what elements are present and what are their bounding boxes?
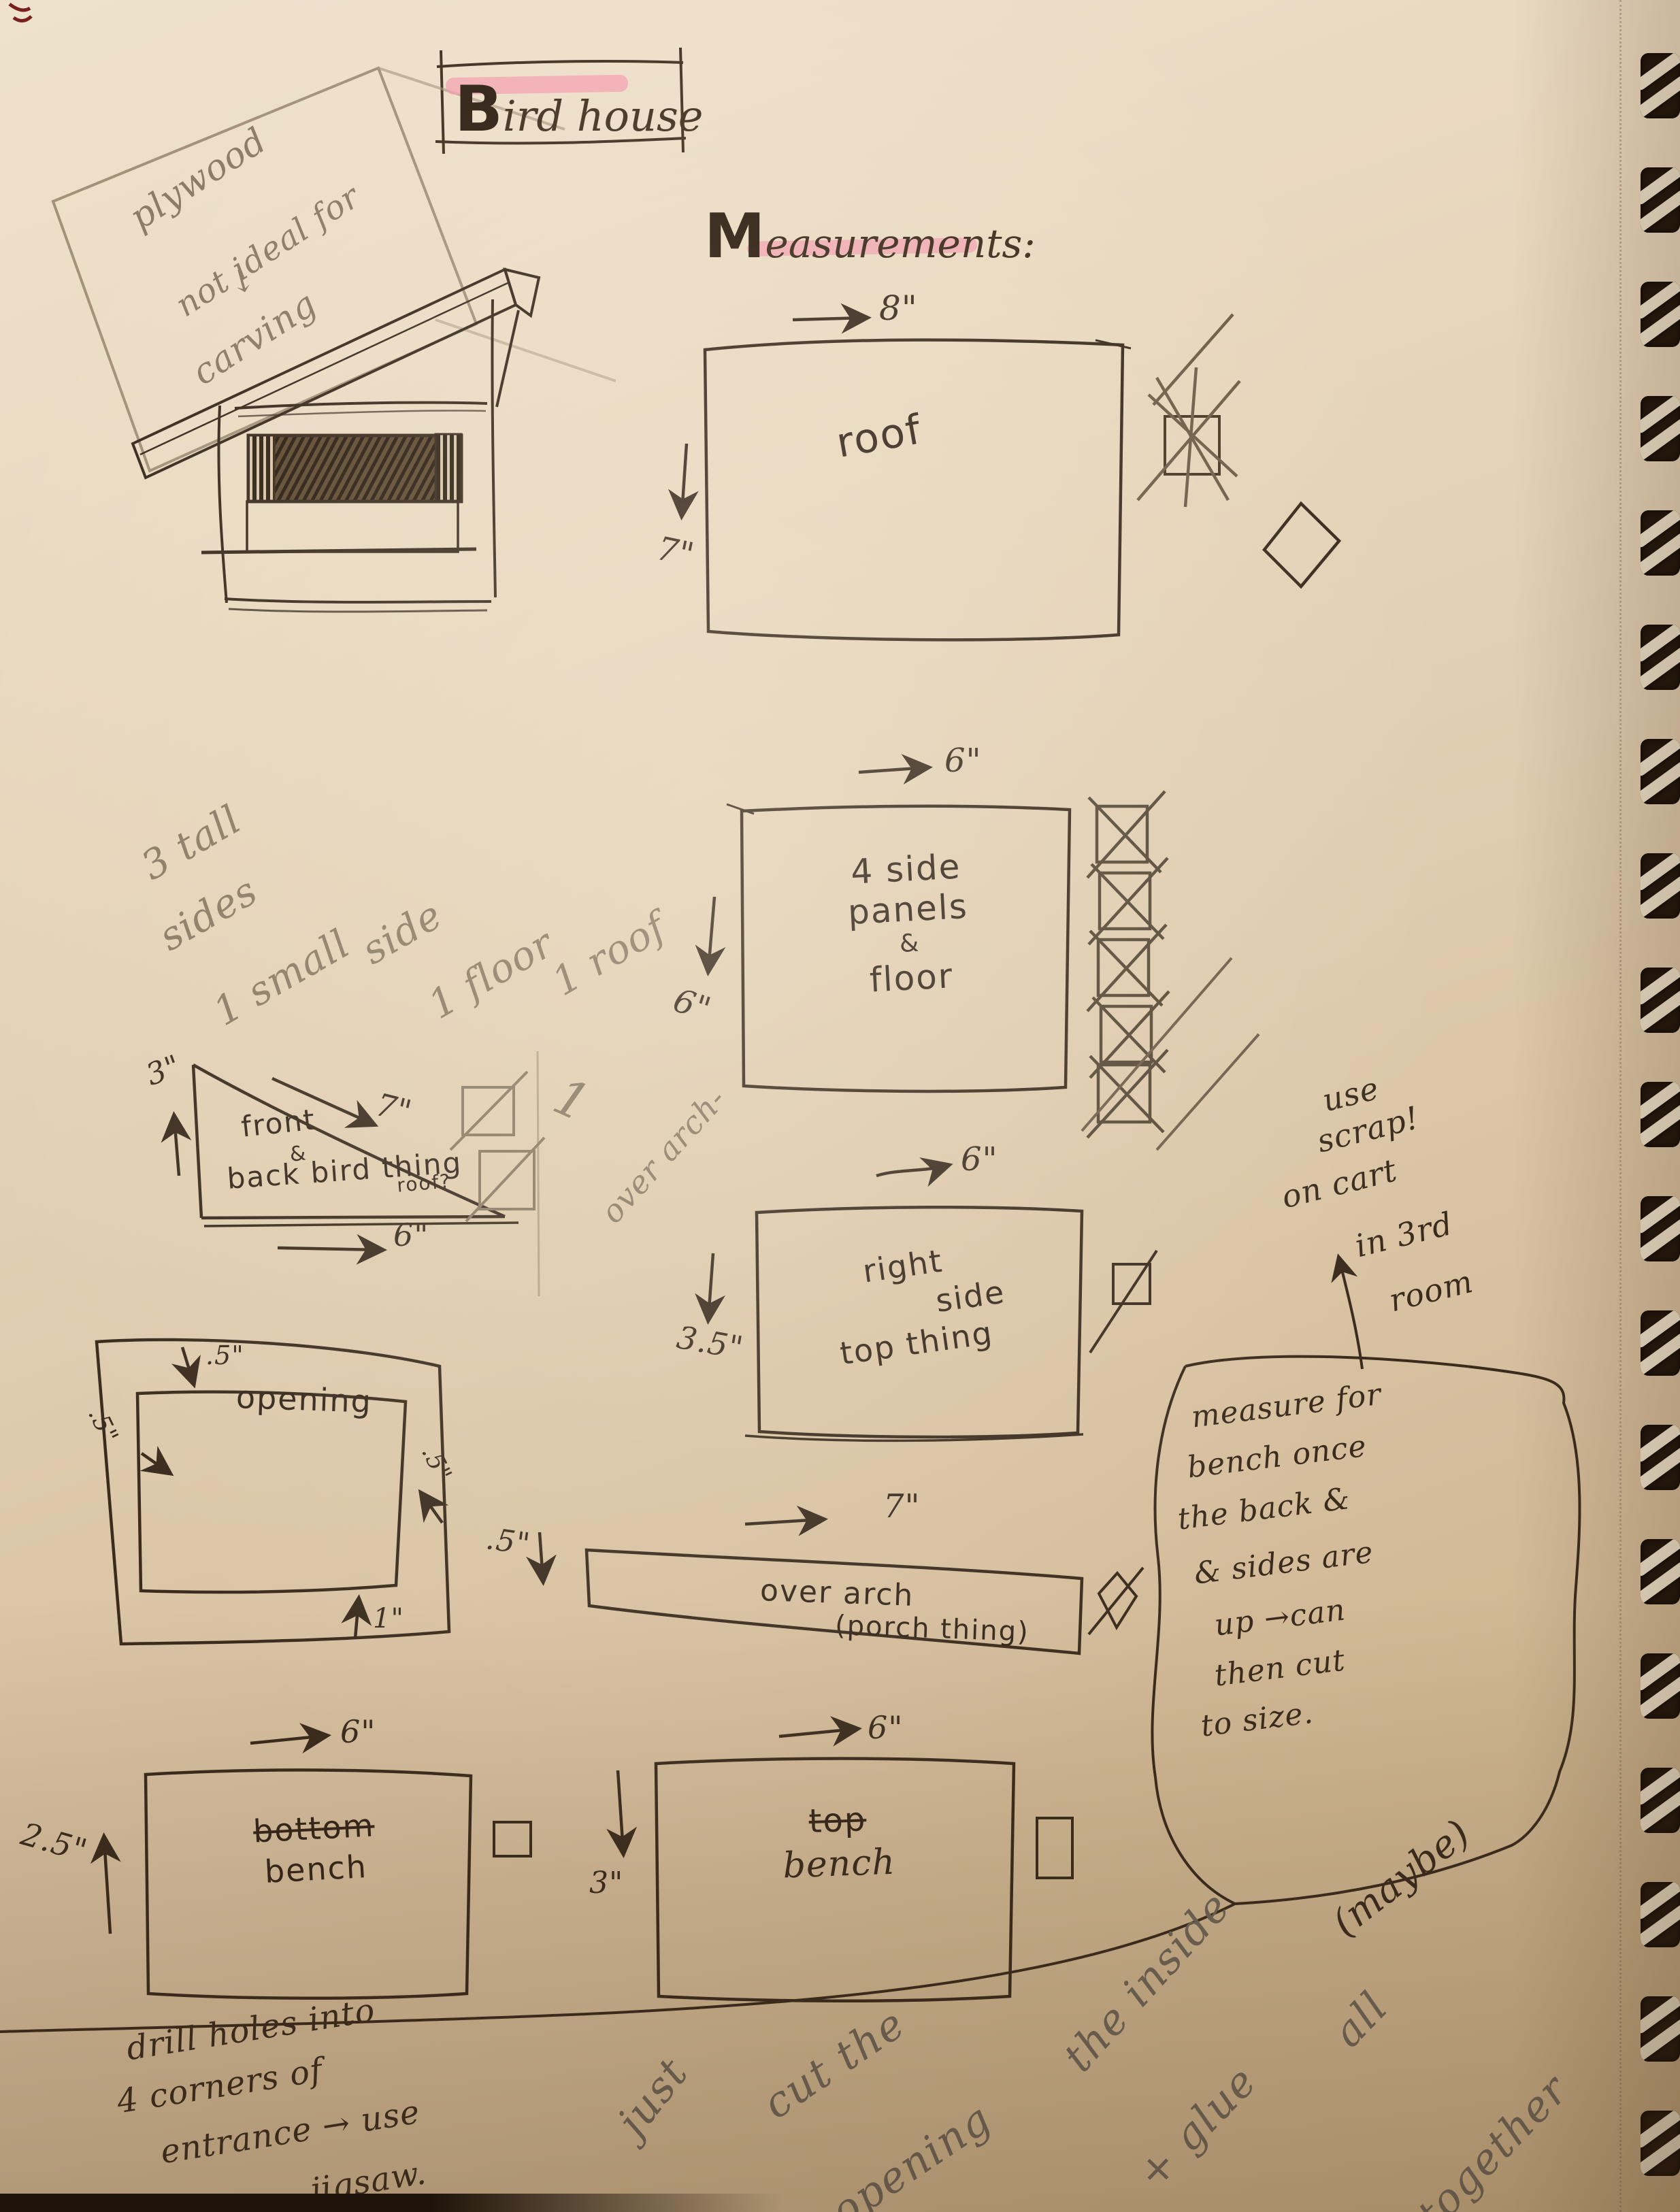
page-title: Bird house: [455, 72, 703, 146]
notebook-page: Bird house Measurements: plywood ↓ not i…: [0, 0, 1680, 2212]
side-panels-width-value: 6": [944, 742, 982, 780]
spiral-binding-hole: [1641, 510, 1680, 576]
top-bench-height-value: 3": [589, 1866, 623, 1900]
spiral-binding-hole: [1641, 1196, 1680, 1261]
spiral-binding-hole: [1641, 625, 1680, 690]
opening-label: opening: [235, 1379, 373, 1420]
spiral-binding-hole: [1641, 53, 1680, 118]
spiral-binding-hole: [1641, 1653, 1680, 1719]
spiral-binding-hole: [1641, 1082, 1680, 1147]
top-bench-label: top bench: [694, 1794, 983, 1893]
spiral-binding: [1619, 0, 1680, 2212]
spiral-binding-hole: [1641, 739, 1680, 804]
opening-bottom-value: 1": [373, 1603, 404, 1634]
spiral-binding-hole: [1641, 2111, 1680, 2176]
spiral-binding-hole: [1641, 1768, 1680, 1833]
gable-line4: roof?: [396, 1170, 452, 1197]
side-panels-label: 4 side panels & floor: [783, 843, 1035, 1005]
bottom-bench-width-value: 6": [340, 1713, 376, 1750]
spiral-binding-hole: [1641, 282, 1680, 347]
spiral-binding-hole: [1641, 853, 1680, 919]
spiral-binding-hole: [1641, 1996, 1680, 2062]
roof-panel-outline: [682, 318, 1131, 640]
spiral-binding-hole: [1641, 1539, 1680, 1604]
over-arch-height-value: .5": [484, 1521, 533, 1562]
spiral-binding-hole: [1641, 396, 1680, 461]
gable-width-value: 6": [393, 1217, 429, 1253]
roof-scrap-scribbles: [1138, 314, 1339, 587]
spiral-binding-hole: [1641, 1882, 1680, 1947]
spiral-binding-hole: [1641, 1310, 1680, 1376]
over-arch-line1: over arch: [759, 1573, 915, 1613]
right-side-width-value: 6": [961, 1140, 998, 1178]
roof-height-value: 7": [653, 529, 697, 574]
pencil-slashed-squares: [450, 1051, 544, 1296]
top-bench-width-value: 6": [868, 1709, 903, 1746]
spiral-binding-hole: [1641, 968, 1680, 1033]
roof-width-value: 8": [879, 288, 918, 328]
bottom-bench-label: bottom bench: [184, 1802, 446, 1896]
spiral-binding-hole: [1641, 167, 1680, 233]
crossed-squares-column: [1082, 791, 1259, 1150]
spiral-binding-hole: [1641, 1425, 1680, 1490]
opening-top-value: .5": [205, 1340, 244, 1370]
over-arch-width-value: 7": [883, 1487, 921, 1525]
measurements-heading: Measurements:: [704, 201, 1036, 272]
photo-bottom-edge: [0, 2194, 783, 2212]
corner-mark: [10, 4, 31, 21]
